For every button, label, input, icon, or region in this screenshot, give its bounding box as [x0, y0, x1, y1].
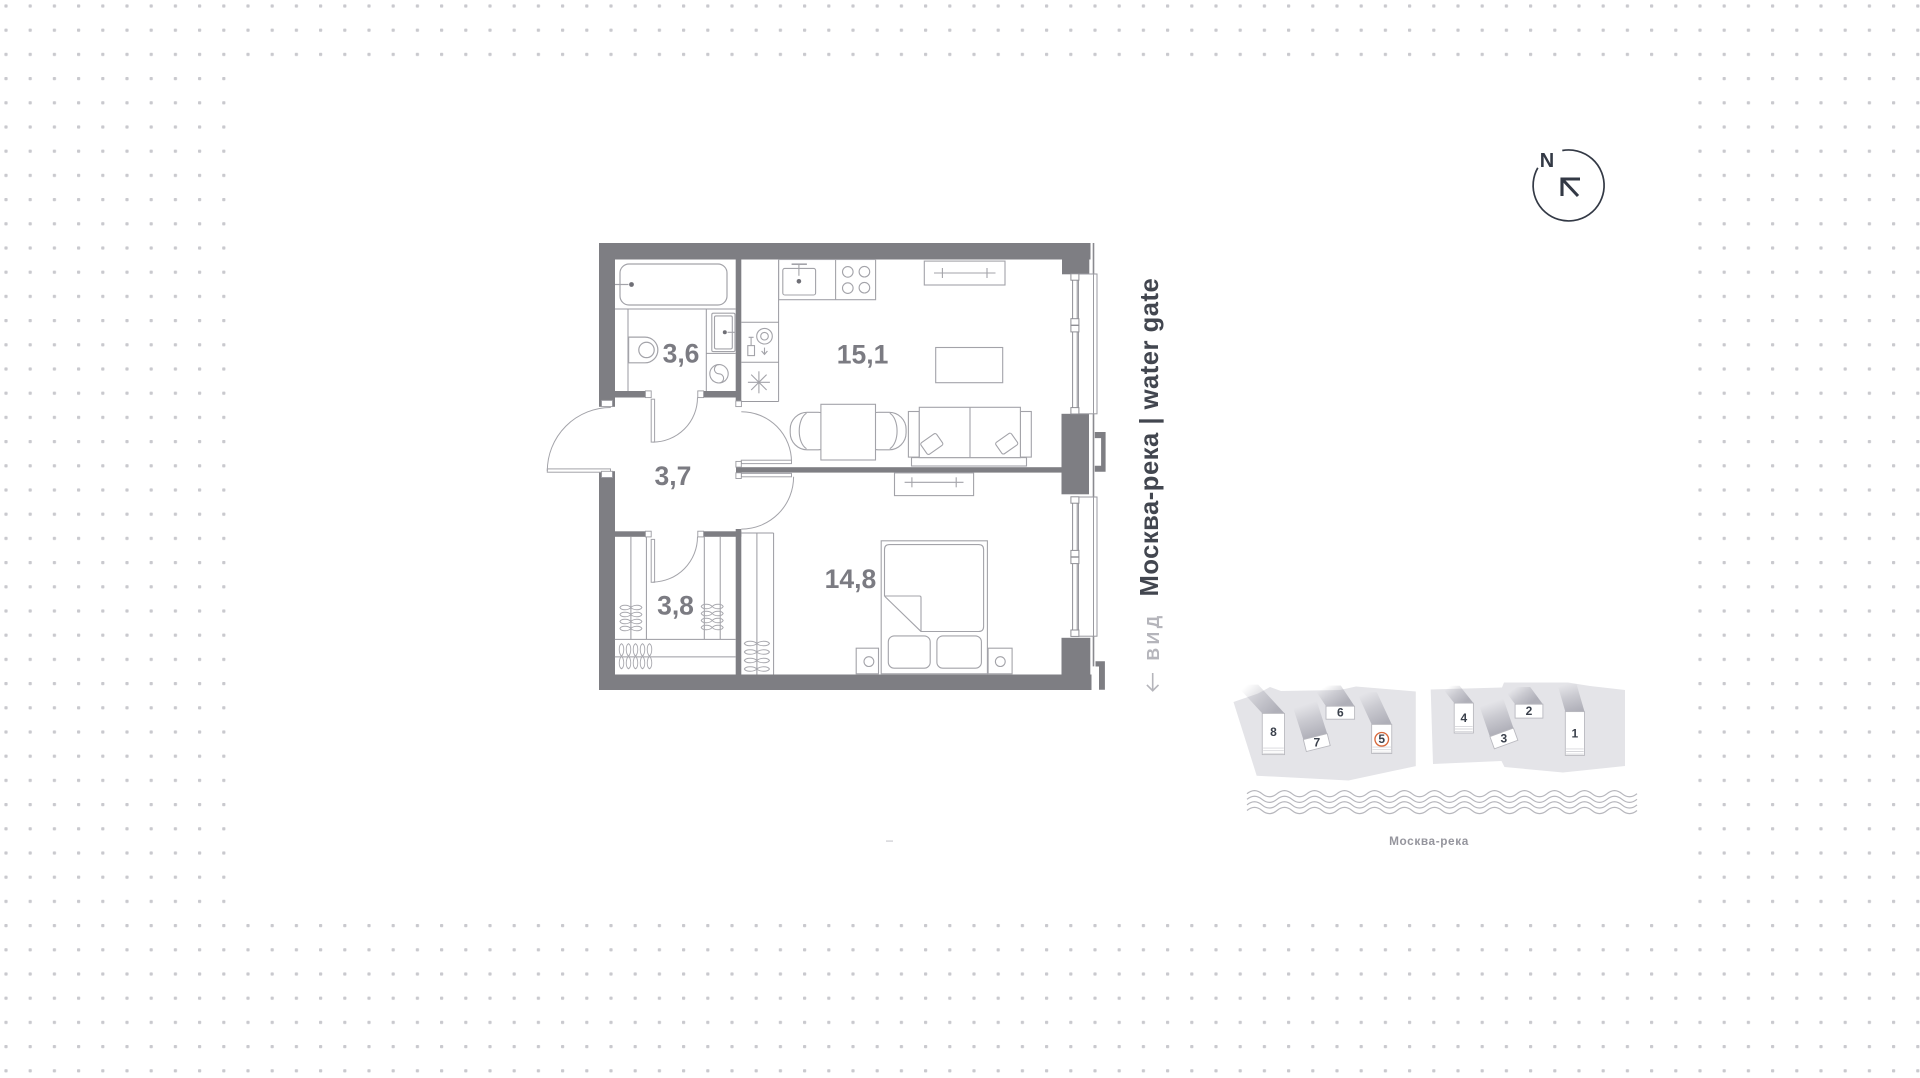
svg-text:3,8: 3,8	[657, 591, 694, 621]
svg-text:5: 5	[1378, 732, 1385, 746]
svg-text:8: 8	[1270, 725, 1277, 739]
svg-text:2: 2	[1526, 704, 1533, 718]
svg-text:3: 3	[1501, 731, 1508, 745]
svg-text:6: 6	[1337, 706, 1344, 720]
svg-text:N: N	[1540, 150, 1554, 172]
svg-text:15,1: 15,1	[837, 339, 889, 369]
svg-text:Москва-река: Москва-река	[1389, 834, 1469, 848]
svg-text:Москва-река | water gate: Москва-река | water gate	[1136, 278, 1164, 597]
svg-text:ВИД: ВИД	[1143, 612, 1163, 660]
svg-text:7: 7	[1313, 736, 1320, 750]
svg-text:3,7: 3,7	[654, 461, 691, 491]
svg-text:4: 4	[1460, 711, 1467, 725]
svg-text:3,6: 3,6	[663, 339, 700, 369]
svg-text:1: 1	[1572, 727, 1579, 741]
svg-text:14,8: 14,8	[825, 564, 877, 594]
